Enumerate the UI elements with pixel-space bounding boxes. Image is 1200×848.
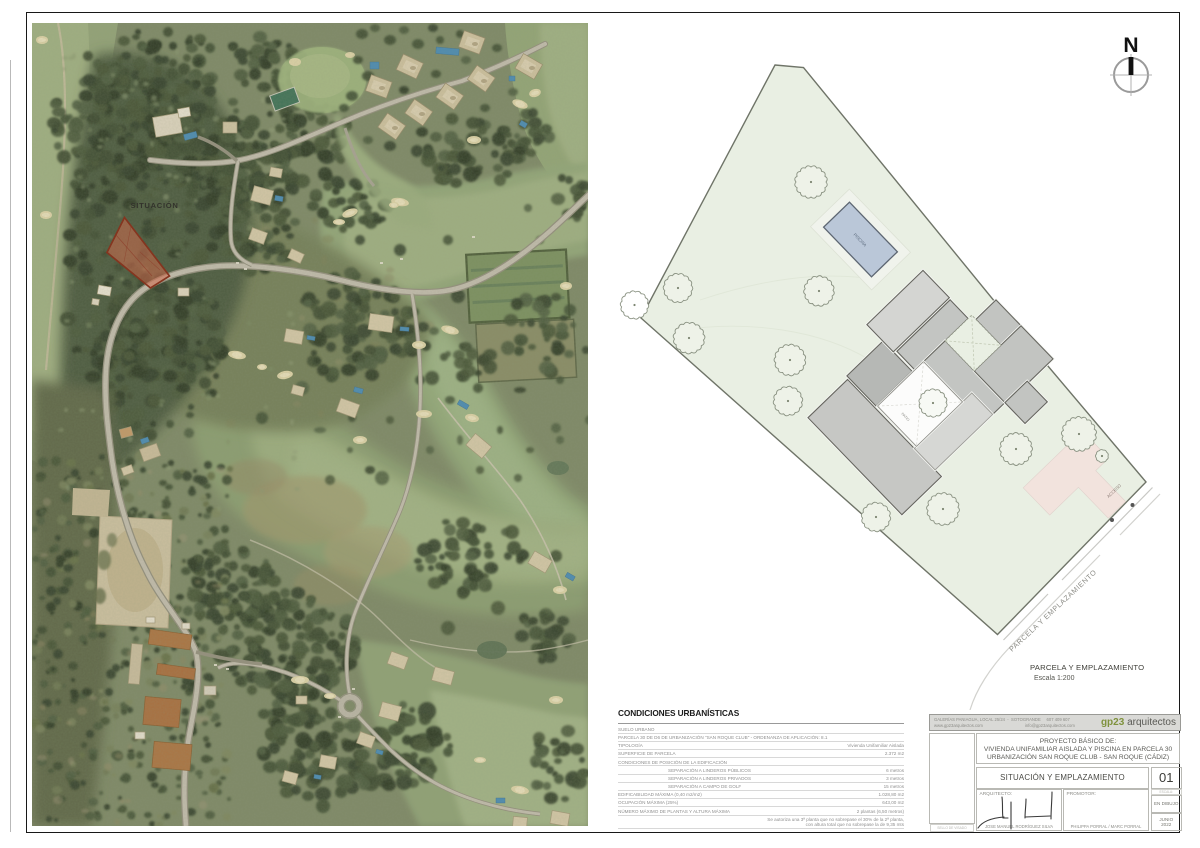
svg-text:Escala 1:200: Escala 1:200 (1034, 675, 1075, 682)
svg-text:SITUACIÓN: SITUACIÓN (131, 201, 179, 210)
svg-text:N: N (1123, 34, 1138, 57)
svg-text:PARCELA Y EMPLAZAMIENTO: PARCELA Y EMPLAZAMIENTO (1030, 663, 1144, 672)
